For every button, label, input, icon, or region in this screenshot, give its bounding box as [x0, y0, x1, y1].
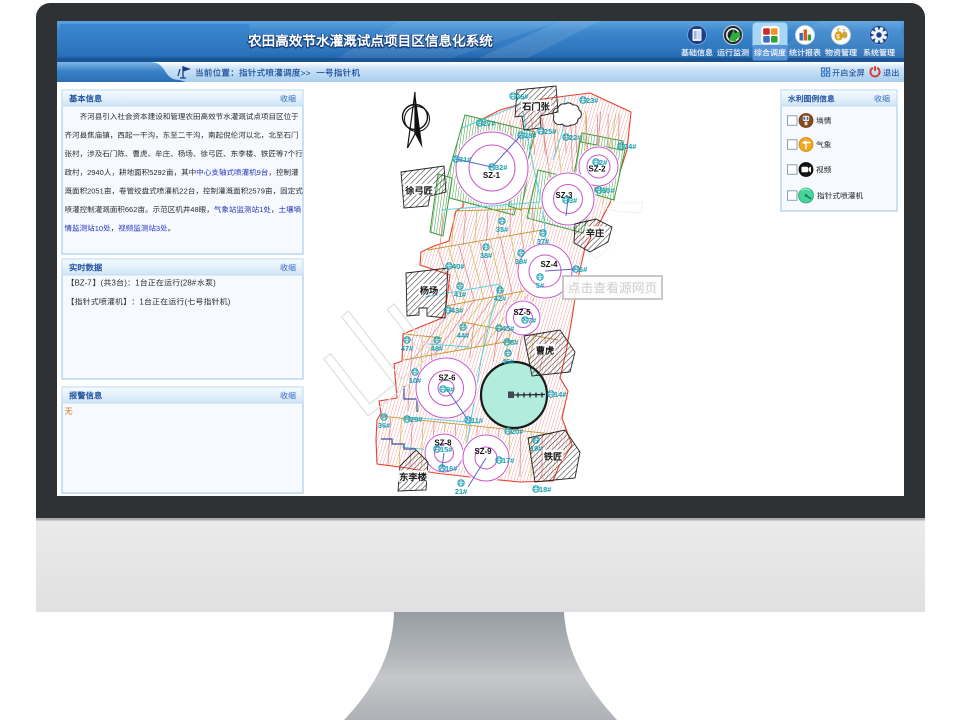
svg-text:48#: 48# [431, 344, 443, 353]
svg-text:44#: 44# [457, 331, 469, 340]
svg-text:2#: 2# [599, 158, 607, 167]
svg-text:14#: 14# [554, 390, 566, 399]
svg-text:SZ-9: SZ-9 [475, 447, 493, 456]
svg-text:10: 10 [95, 224, 103, 233]
svg-text:36#: 36# [378, 421, 390, 430]
svg-text:$: $ [836, 34, 840, 41]
svg-text:30#: 30# [602, 186, 614, 195]
svg-text:(28#: (28# [180, 279, 196, 288]
svg-text:9: 9 [257, 168, 261, 177]
svg-text:29#: 29# [410, 415, 422, 424]
svg-text:18#: 18# [539, 485, 551, 494]
svg-text:2940: 2940 [87, 168, 104, 177]
svg-text:37#: 37# [537, 237, 549, 246]
svg-text:16#: 16# [445, 464, 457, 473]
svg-text:3: 3 [112, 279, 117, 288]
svg-text:10#: 10# [409, 376, 421, 385]
svg-text:40#: 40# [452, 262, 464, 271]
svg-text:1: 1 [139, 298, 143, 307]
svg-text:19#: 19# [530, 444, 542, 453]
svg-text:31#: 31# [459, 155, 471, 164]
svg-text:35#: 35# [496, 225, 508, 234]
svg-text:9#: 9# [446, 385, 454, 394]
svg-text:41#: 41# [454, 290, 466, 299]
svg-text:42#: 42# [494, 294, 506, 303]
svg-text:3#: 3# [569, 196, 577, 205]
svg-text:17#: 17# [502, 456, 514, 465]
svg-text:20#: 20# [511, 427, 523, 436]
svg-text:38#: 38# [480, 251, 492, 260]
svg-text:45#: 45# [502, 324, 514, 333]
svg-text:25#: 25# [544, 127, 556, 136]
svg-text:27#: 27# [483, 119, 495, 128]
svg-text:48: 48 [190, 205, 198, 214]
svg-text:22#: 22# [569, 133, 581, 142]
svg-text:22: 22 [179, 187, 187, 196]
svg-text:(: ( [101, 279, 104, 288]
svg-text:26#: 26# [516, 92, 528, 101]
svg-text:39#: 39# [515, 257, 527, 266]
svg-text:): ) [124, 279, 127, 288]
svg-text:2051: 2051 [87, 187, 104, 196]
svg-text:21#: 21# [455, 487, 467, 496]
svg-text:43#: 43# [451, 306, 463, 315]
svg-text:): ) [213, 279, 216, 288]
svg-text:46#: 46# [502, 357, 514, 366]
svg-text:SZ-1: SZ-1 [483, 171, 501, 180]
svg-text:47#: 47# [401, 344, 413, 353]
svg-text:15#: 15# [440, 445, 452, 454]
svg-text:SZ-6: SZ-6 [439, 373, 457, 382]
svg-text:7: 7 [284, 149, 288, 158]
svg-text:23#: 23# [586, 96, 598, 105]
svg-text:7#: 7# [528, 316, 536, 325]
svg-text:11#: 11# [471, 416, 483, 425]
svg-text:662: 662 [125, 205, 138, 214]
svg-text:>>: >> [301, 68, 311, 78]
svg-text:28#: 28# [524, 131, 536, 140]
svg-text:(: ( [185, 298, 188, 307]
svg-text:SZ-4: SZ-4 [541, 260, 559, 269]
svg-text:2579: 2579 [248, 187, 265, 196]
svg-text:): ) [228, 298, 231, 307]
svg-text:3: 3 [156, 224, 160, 233]
svg-text:1: 1 [135, 279, 139, 288]
svg-text:24#: 24# [624, 142, 636, 151]
svg-text:8#: 8# [510, 338, 518, 347]
svg-text:1: 1 [259, 205, 263, 214]
svg-text:6#: 6# [579, 265, 587, 274]
svg-text:32#: 32# [495, 163, 507, 172]
svg-text:BZ-7: BZ-7 [75, 279, 92, 288]
svg-text:5292: 5292 [149, 168, 166, 177]
svg-text:5#: 5# [536, 281, 544, 290]
